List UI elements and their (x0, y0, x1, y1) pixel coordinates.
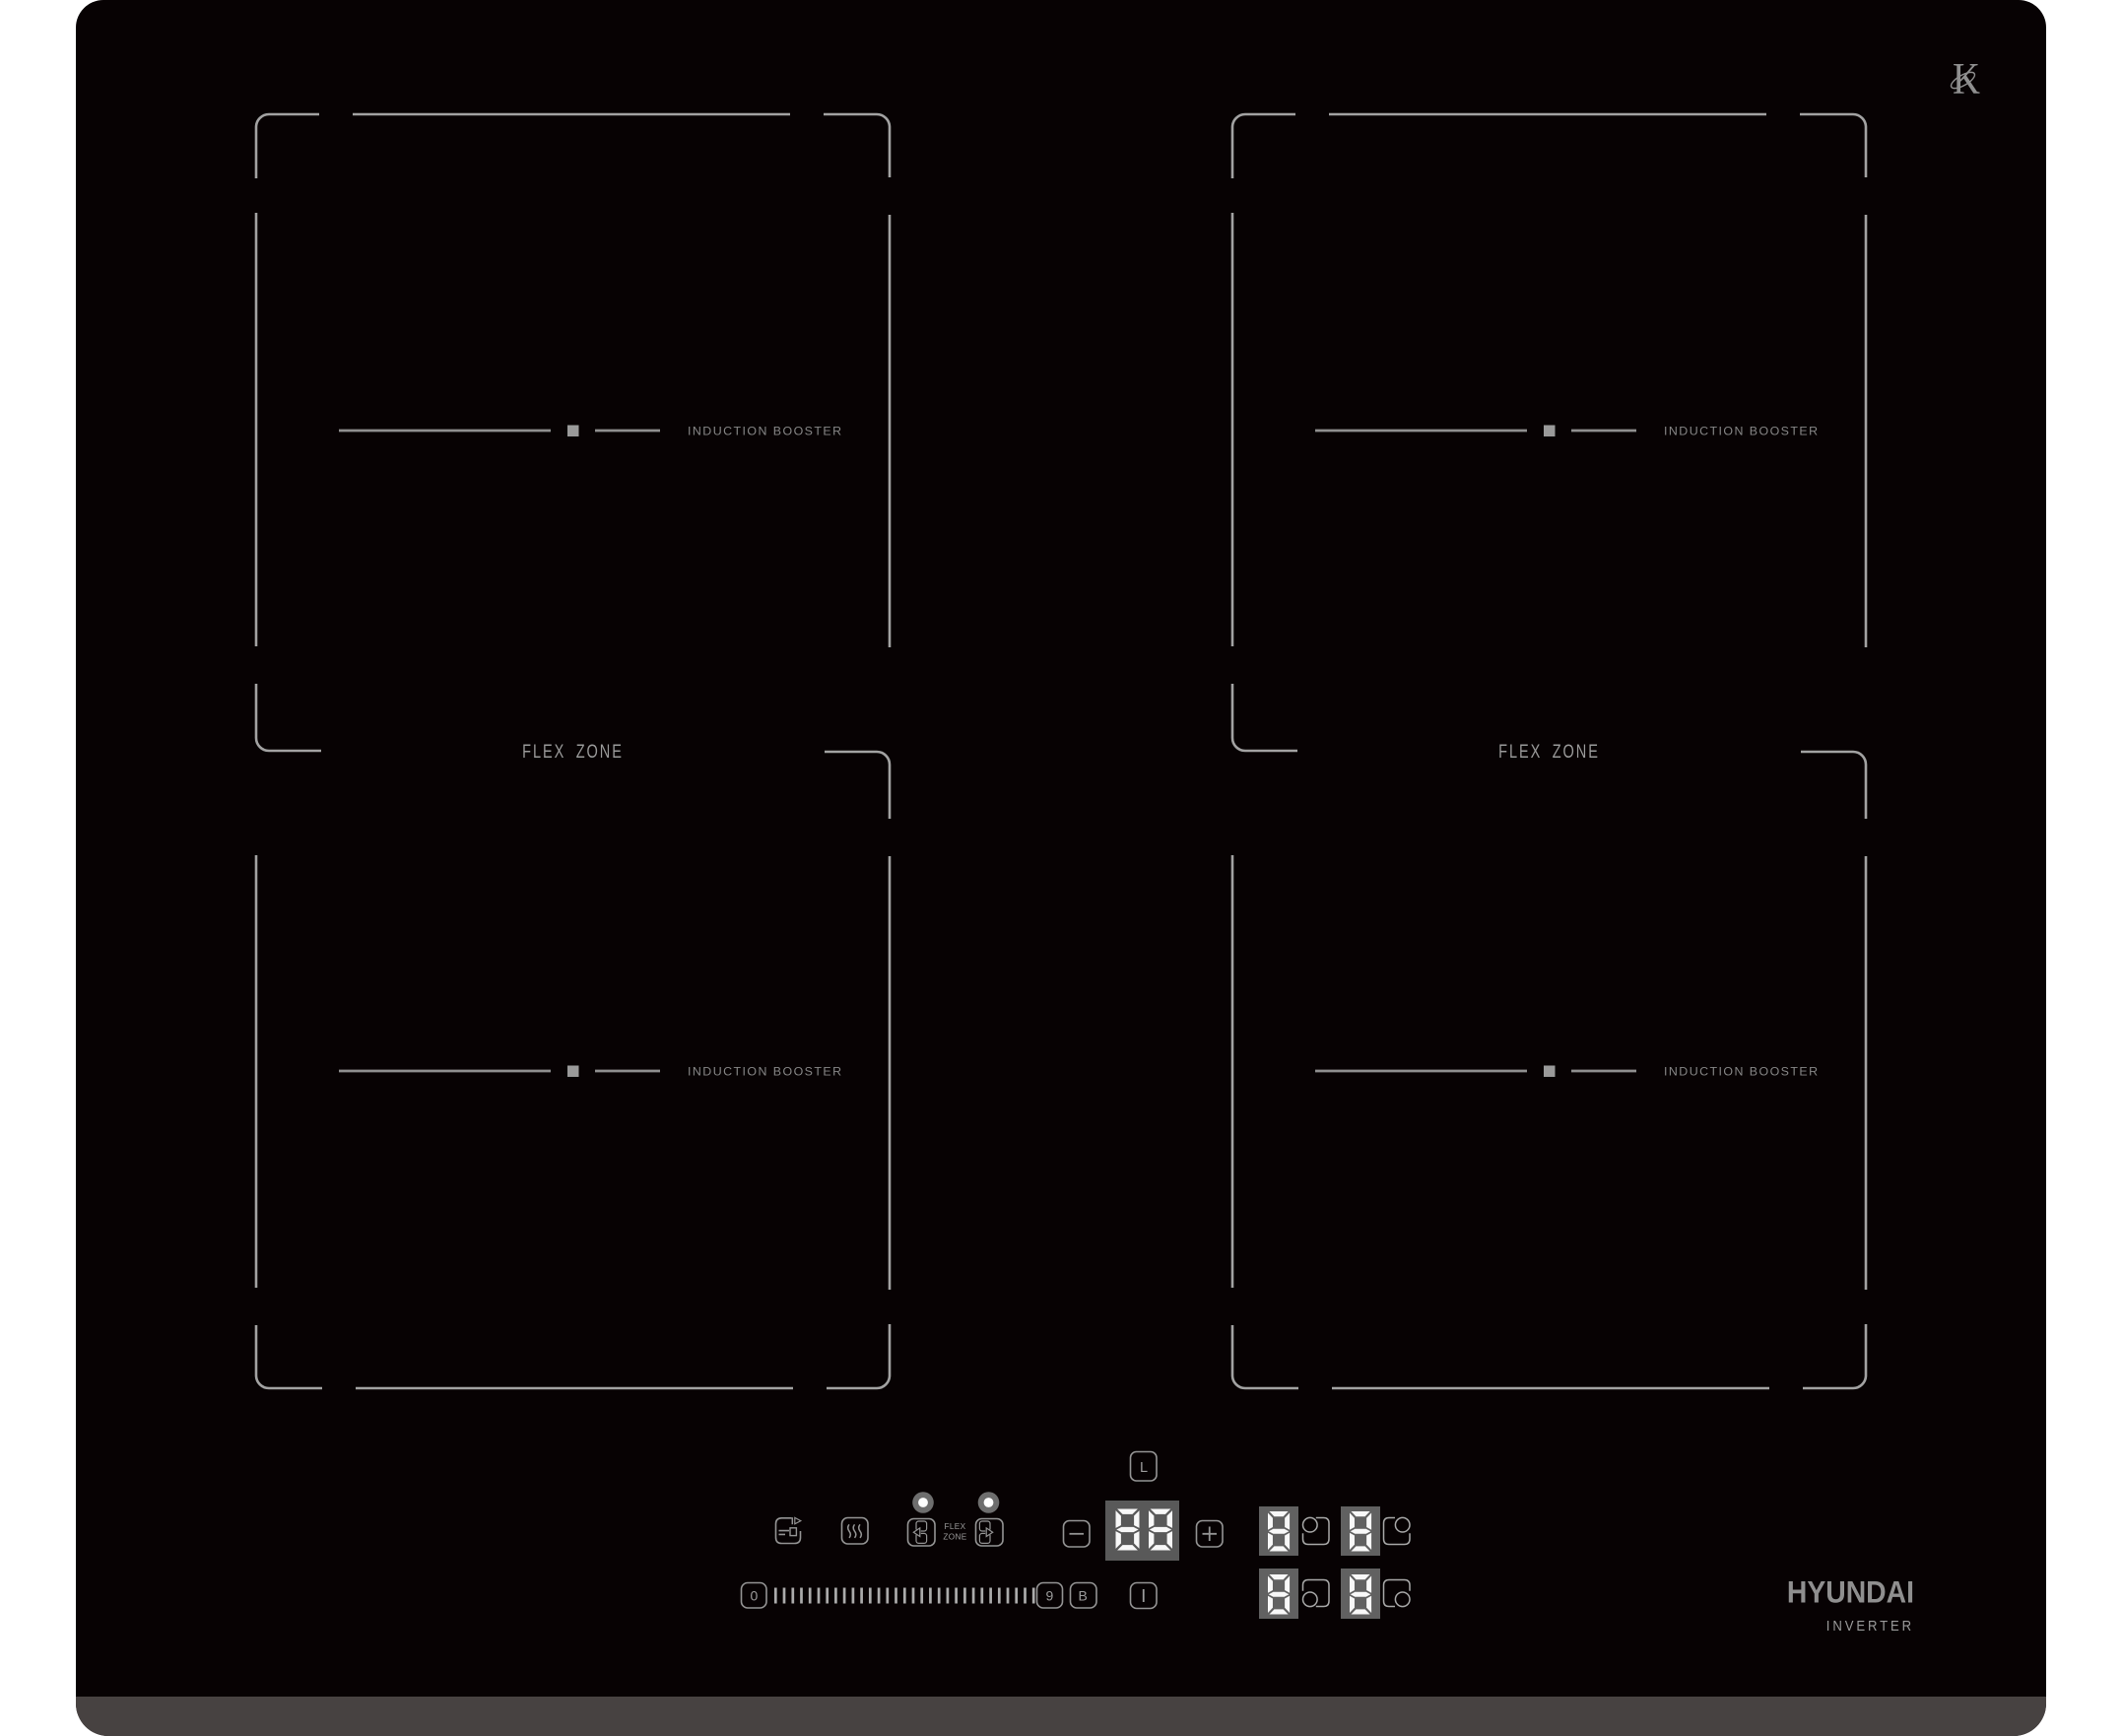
svg-text:INVERTER: INVERTER (1826, 1617, 1914, 1634)
svg-text:K: K (1953, 55, 1980, 103)
svg-text:L: L (1140, 1460, 1148, 1476)
svg-text:FLEX ZONE: FLEX ZONE (1498, 741, 1600, 762)
svg-text:9: 9 (1046, 1588, 1054, 1604)
svg-text:0: 0 (751, 1588, 759, 1604)
svg-text:FLEX: FLEX (944, 1522, 965, 1531)
svg-text:HYUNDAI: HYUNDAI (1787, 1575, 1914, 1610)
svg-text:ZONE: ZONE (943, 1533, 966, 1542)
svg-text:FLEX ZONE: FLEX ZONE (522, 741, 624, 762)
svg-text:B: B (1079, 1588, 1088, 1604)
